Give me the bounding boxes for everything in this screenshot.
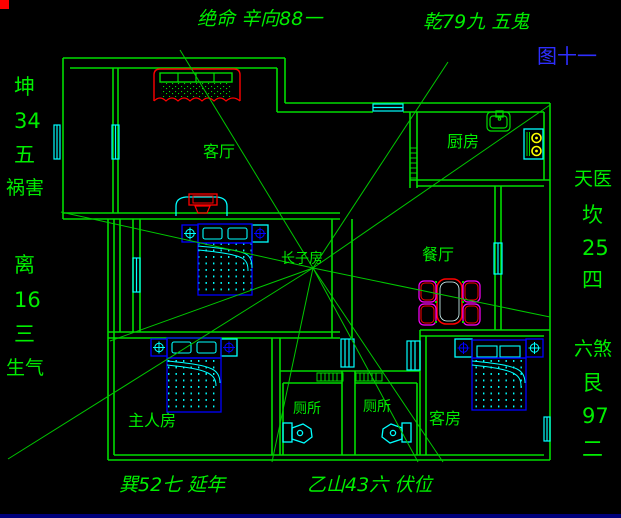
compass-label-97: 97 (582, 405, 609, 427)
compass-label-kun: 坤 (14, 76, 35, 98)
compass-label-li: 离 (14, 254, 35, 276)
compass-label-shengqi: 生气 (6, 359, 44, 379)
room-label-toilet-left: 厕所 (293, 402, 321, 417)
annotation-top-left: 绝命 辛向88一 (197, 10, 322, 30)
bed-symbol-guest (455, 339, 543, 410)
compass-label-16: 16 (14, 289, 41, 311)
compass-label-huohai: 祸害 (6, 179, 44, 199)
room-label-master: 主人房 (128, 413, 176, 430)
room-label-toilet-right: 厕所 (363, 400, 391, 415)
sink-symbol (487, 111, 510, 131)
bed-symbol-eldest-son (182, 224, 268, 295)
compass-label-si: 四 (582, 269, 603, 291)
stove-symbol (524, 129, 543, 159)
figure-number-label: 图十一 (537, 46, 597, 67)
sofa-symbol (154, 69, 240, 101)
compass-label-wu: 五 (14, 144, 35, 166)
toilet-symbol-left (283, 423, 312, 443)
dining-set-symbol (419, 279, 480, 325)
compass-label-tianyi: 天医 (574, 170, 612, 190)
room-label-kitchen: 厨房 (447, 134, 479, 151)
compass-label-25: 25 (582, 237, 609, 259)
bed-symbol-master (151, 338, 237, 412)
room-label-dining: 餐厅 (422, 247, 454, 264)
compass-label-kan: 坎 (582, 204, 603, 226)
room-label-guest: 客房 (429, 411, 461, 428)
cad-viewport[interactable]: 绝命 辛向88一 乾79九 五鬼 图十一 坤 34 五 祸害 离 16 三 生气… (0, 0, 621, 518)
annotation-bottom-left: 巽52七 延年 (119, 476, 225, 496)
compass-label-san: 三 (14, 323, 35, 345)
compass-label-er: 二 (582, 438, 603, 460)
room-label-living: 客厅 (203, 144, 235, 161)
compass-label-34: 34 (14, 110, 41, 132)
annotation-top-right: 乾79九 五鬼 (423, 13, 529, 33)
room-label-eldest-son: 长子房 (281, 252, 323, 267)
compass-label-liusha: 六煞 (574, 340, 612, 360)
annotation-bottom-right: 乙山43六 伏位 (307, 476, 432, 496)
compass-label-gen: 艮 (582, 372, 603, 394)
